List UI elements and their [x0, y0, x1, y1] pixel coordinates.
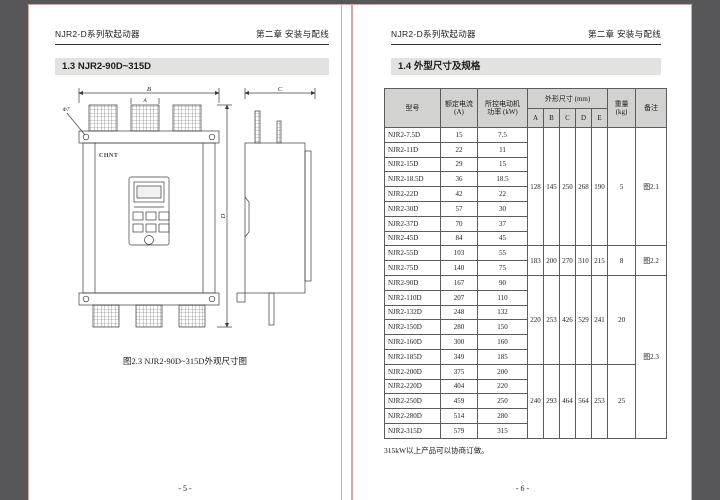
power-cell: 250: [478, 394, 528, 409]
current-cell: 349: [441, 349, 478, 364]
model-cell: NJR2-30D: [385, 201, 441, 216]
page-number: - 5 -: [29, 484, 341, 493]
power-cell: 75: [478, 261, 528, 276]
col-header-current: 额定电流 (A): [441, 89, 478, 128]
current-cell: 579: [441, 423, 478, 438]
col-header-dim-e: E: [592, 109, 608, 128]
col-header-dim-b: B: [544, 109, 560, 128]
model-cell: NJR2-22D: [385, 187, 441, 202]
model-cell: NJR2-220D: [385, 379, 441, 394]
power-cell: 22: [478, 187, 528, 202]
remark-cell: 图2.1: [636, 128, 667, 246]
power-cell: 150: [478, 320, 528, 335]
footnote: 315kW以上产品可以协商订做。: [384, 445, 489, 456]
table-row: NJR2-55D103551832002703102158图2.2: [385, 246, 667, 261]
dim-cell: 215: [592, 246, 608, 276]
remark-cell: 图2.2: [636, 246, 667, 276]
section-title-1-4: 1.4 外型尺寸及规格: [391, 58, 661, 75]
power-cell: 45: [478, 231, 528, 246]
current-cell: 42: [441, 187, 478, 202]
weight-cell: 20: [608, 275, 636, 364]
current-cell: 22: [441, 142, 478, 157]
dim-cell: 529: [576, 275, 592, 364]
model-cell: NJR2-150D: [385, 320, 441, 335]
hole-dim-label: Φ7: [63, 107, 70, 113]
col-header-line: 重量: [608, 100, 635, 109]
power-cell: 15: [478, 157, 528, 172]
model-cell: NJR2-7.5D: [385, 128, 441, 143]
col-header-dim-a: A: [528, 109, 544, 128]
current-cell: 70: [441, 216, 478, 231]
model-cell: NJR2-160D: [385, 335, 441, 350]
col-header-dim-d: D: [576, 109, 592, 128]
col-header-dimensions: 外形尺寸 (mm): [528, 89, 608, 109]
spec-table: 型号 额定电流 (A) 所控电动机 功率 (kW) 外形尺寸 (mm) 重量: [384, 88, 667, 439]
brand-logo: CHNT: [99, 153, 118, 159]
current-cell: 140: [441, 261, 478, 276]
col-header-line: (kg): [608, 108, 635, 117]
dim-cell: 190: [592, 128, 608, 246]
header-title: NJR2-D系列软起动器: [391, 28, 476, 40]
power-cell: 90: [478, 275, 528, 290]
dim-cell: 183: [528, 246, 544, 276]
model-cell: NJR2-280D: [385, 409, 441, 424]
col-header-power: 所控电动机 功率 (kW): [478, 89, 528, 128]
power-cell: 160: [478, 335, 528, 350]
current-cell: 57: [441, 201, 478, 216]
dim-label-c: C: [278, 86, 283, 93]
model-cell: NJR2-90D: [385, 275, 441, 290]
dim-cell: 464: [560, 364, 576, 438]
dim-label-b: B: [147, 86, 151, 93]
page-spread: NJR2-D系列软起动器 第二章 安装与配线 1.3 NJR2-90D~315D: [28, 4, 692, 500]
model-cell: NJR2-37D: [385, 216, 441, 231]
power-cell: 110: [478, 290, 528, 305]
model-cell: NJR2-75D: [385, 261, 441, 276]
section-title-1-3: 1.3 NJR2-90D~315D: [55, 58, 329, 75]
current-cell: 36: [441, 172, 478, 187]
spec-table-body: NJR2-7.5D157.51281452502681905图2.1NJR2-1…: [385, 128, 667, 439]
page-right: NJR2-D系列软起动器 第二章 安装与配线 1.4 外型尺寸及规格 型号 额定…: [353, 5, 692, 500]
model-cell: NJR2-18.5D: [385, 172, 441, 187]
weight-cell: 8: [608, 246, 636, 276]
dim-cell: 310: [576, 246, 592, 276]
power-cell: 220: [478, 379, 528, 394]
page-left: NJR2-D系列软起动器 第二章 安装与配线 1.3 NJR2-90D~315D: [29, 5, 341, 500]
dim-cell: 253: [544, 275, 560, 364]
current-cell: 84: [441, 231, 478, 246]
table-row: NJR2-7.5D157.51281452502681905图2.1: [385, 128, 667, 143]
col-header-line: (A): [441, 108, 477, 117]
col-header-weight: 重量 (kg): [608, 89, 636, 128]
col-header-line: 额定电流: [441, 100, 477, 109]
weight-cell: 25: [608, 364, 636, 438]
col-header-line: 所控电动机: [478, 100, 527, 109]
header-chapter: 第二章 安装与配线: [256, 28, 329, 40]
current-cell: 375: [441, 364, 478, 379]
current-cell: 167: [441, 275, 478, 290]
current-cell: 248: [441, 305, 478, 320]
current-cell: 404: [441, 379, 478, 394]
dim-cell: 426: [560, 275, 576, 364]
power-cell: 132: [478, 305, 528, 320]
figure-caption: 图2.3 NJR2-90D~315D外观尺寸图: [29, 355, 341, 367]
power-cell: 185: [478, 349, 528, 364]
document-viewer: NJR2-D系列软起动器 第二章 安装与配线 1.3 NJR2-90D~315D: [0, 0, 720, 500]
dim-cell: 145: [544, 128, 560, 246]
power-cell: 7.5: [478, 128, 528, 143]
remark-cell: 图2.3: [636, 275, 667, 438]
dim-cell: 270: [560, 246, 576, 276]
col-header-remark: 备注: [636, 89, 667, 128]
col-header-model: 型号: [385, 89, 441, 128]
dimension-drawing: B A C D Φ7 CHNT: [59, 85, 329, 352]
model-cell: NJR2-15D: [385, 157, 441, 172]
current-cell: 15: [441, 128, 478, 143]
model-cell: NJR2-250D: [385, 394, 441, 409]
header-chapter: 第二章 安装与配线: [588, 28, 661, 40]
dim-cell: 200: [544, 246, 560, 276]
page-number: - 6 -: [353, 484, 692, 493]
current-cell: 103: [441, 246, 478, 261]
running-header: NJR2-D系列软起动器 第二章 安装与配线: [55, 28, 329, 45]
dim-cell: 293: [544, 364, 560, 438]
power-cell: 55: [478, 246, 528, 261]
model-cell: NJR2-110D: [385, 290, 441, 305]
dim-cell: 240: [528, 364, 544, 438]
table-row: NJR2-200D37520024029346456425325: [385, 364, 667, 379]
model-cell: NJR2-132D: [385, 305, 441, 320]
model-cell: NJR2-185D: [385, 349, 441, 364]
dim-cell: 253: [592, 364, 608, 438]
running-header: NJR2-D系列软起动器 第二章 安装与配线: [391, 28, 661, 45]
model-cell: NJR2-200D: [385, 364, 441, 379]
dim-cell: 220: [528, 275, 544, 364]
table-row: NJR2-90D1679022025342652924120图2.3: [385, 275, 667, 290]
dim-cell: 241: [592, 275, 608, 364]
power-cell: 30: [478, 201, 528, 216]
current-cell: 29: [441, 157, 478, 172]
power-cell: 200: [478, 364, 528, 379]
model-cell: NJR2-45D: [385, 231, 441, 246]
dim-label-d: D: [220, 213, 227, 219]
dim-cell: 250: [560, 128, 576, 246]
power-cell: 37: [478, 216, 528, 231]
current-cell: 459: [441, 394, 478, 409]
page-divider: [341, 5, 342, 500]
dim-cell: 128: [528, 128, 544, 246]
power-cell: 18.5: [478, 172, 528, 187]
model-cell: NJR2-55D: [385, 246, 441, 261]
power-cell: 315: [478, 423, 528, 438]
model-cell: NJR2-315D: [385, 423, 441, 438]
current-cell: 514: [441, 409, 478, 424]
power-cell: 280: [478, 409, 528, 424]
model-cell: NJR2-11D: [385, 142, 441, 157]
dim-label-a: A: [142, 98, 147, 104]
current-cell: 300: [441, 335, 478, 350]
dim-cell: 268: [576, 128, 592, 246]
header-title: NJR2-D系列软起动器: [55, 28, 140, 40]
dim-cell: 564: [576, 364, 592, 438]
weight-cell: 5: [608, 128, 636, 246]
col-header-line: 功率 (kW): [478, 108, 527, 117]
current-cell: 207: [441, 290, 478, 305]
power-cell: 11: [478, 142, 528, 157]
col-header-dim-c: C: [560, 109, 576, 128]
current-cell: 280: [441, 320, 478, 335]
